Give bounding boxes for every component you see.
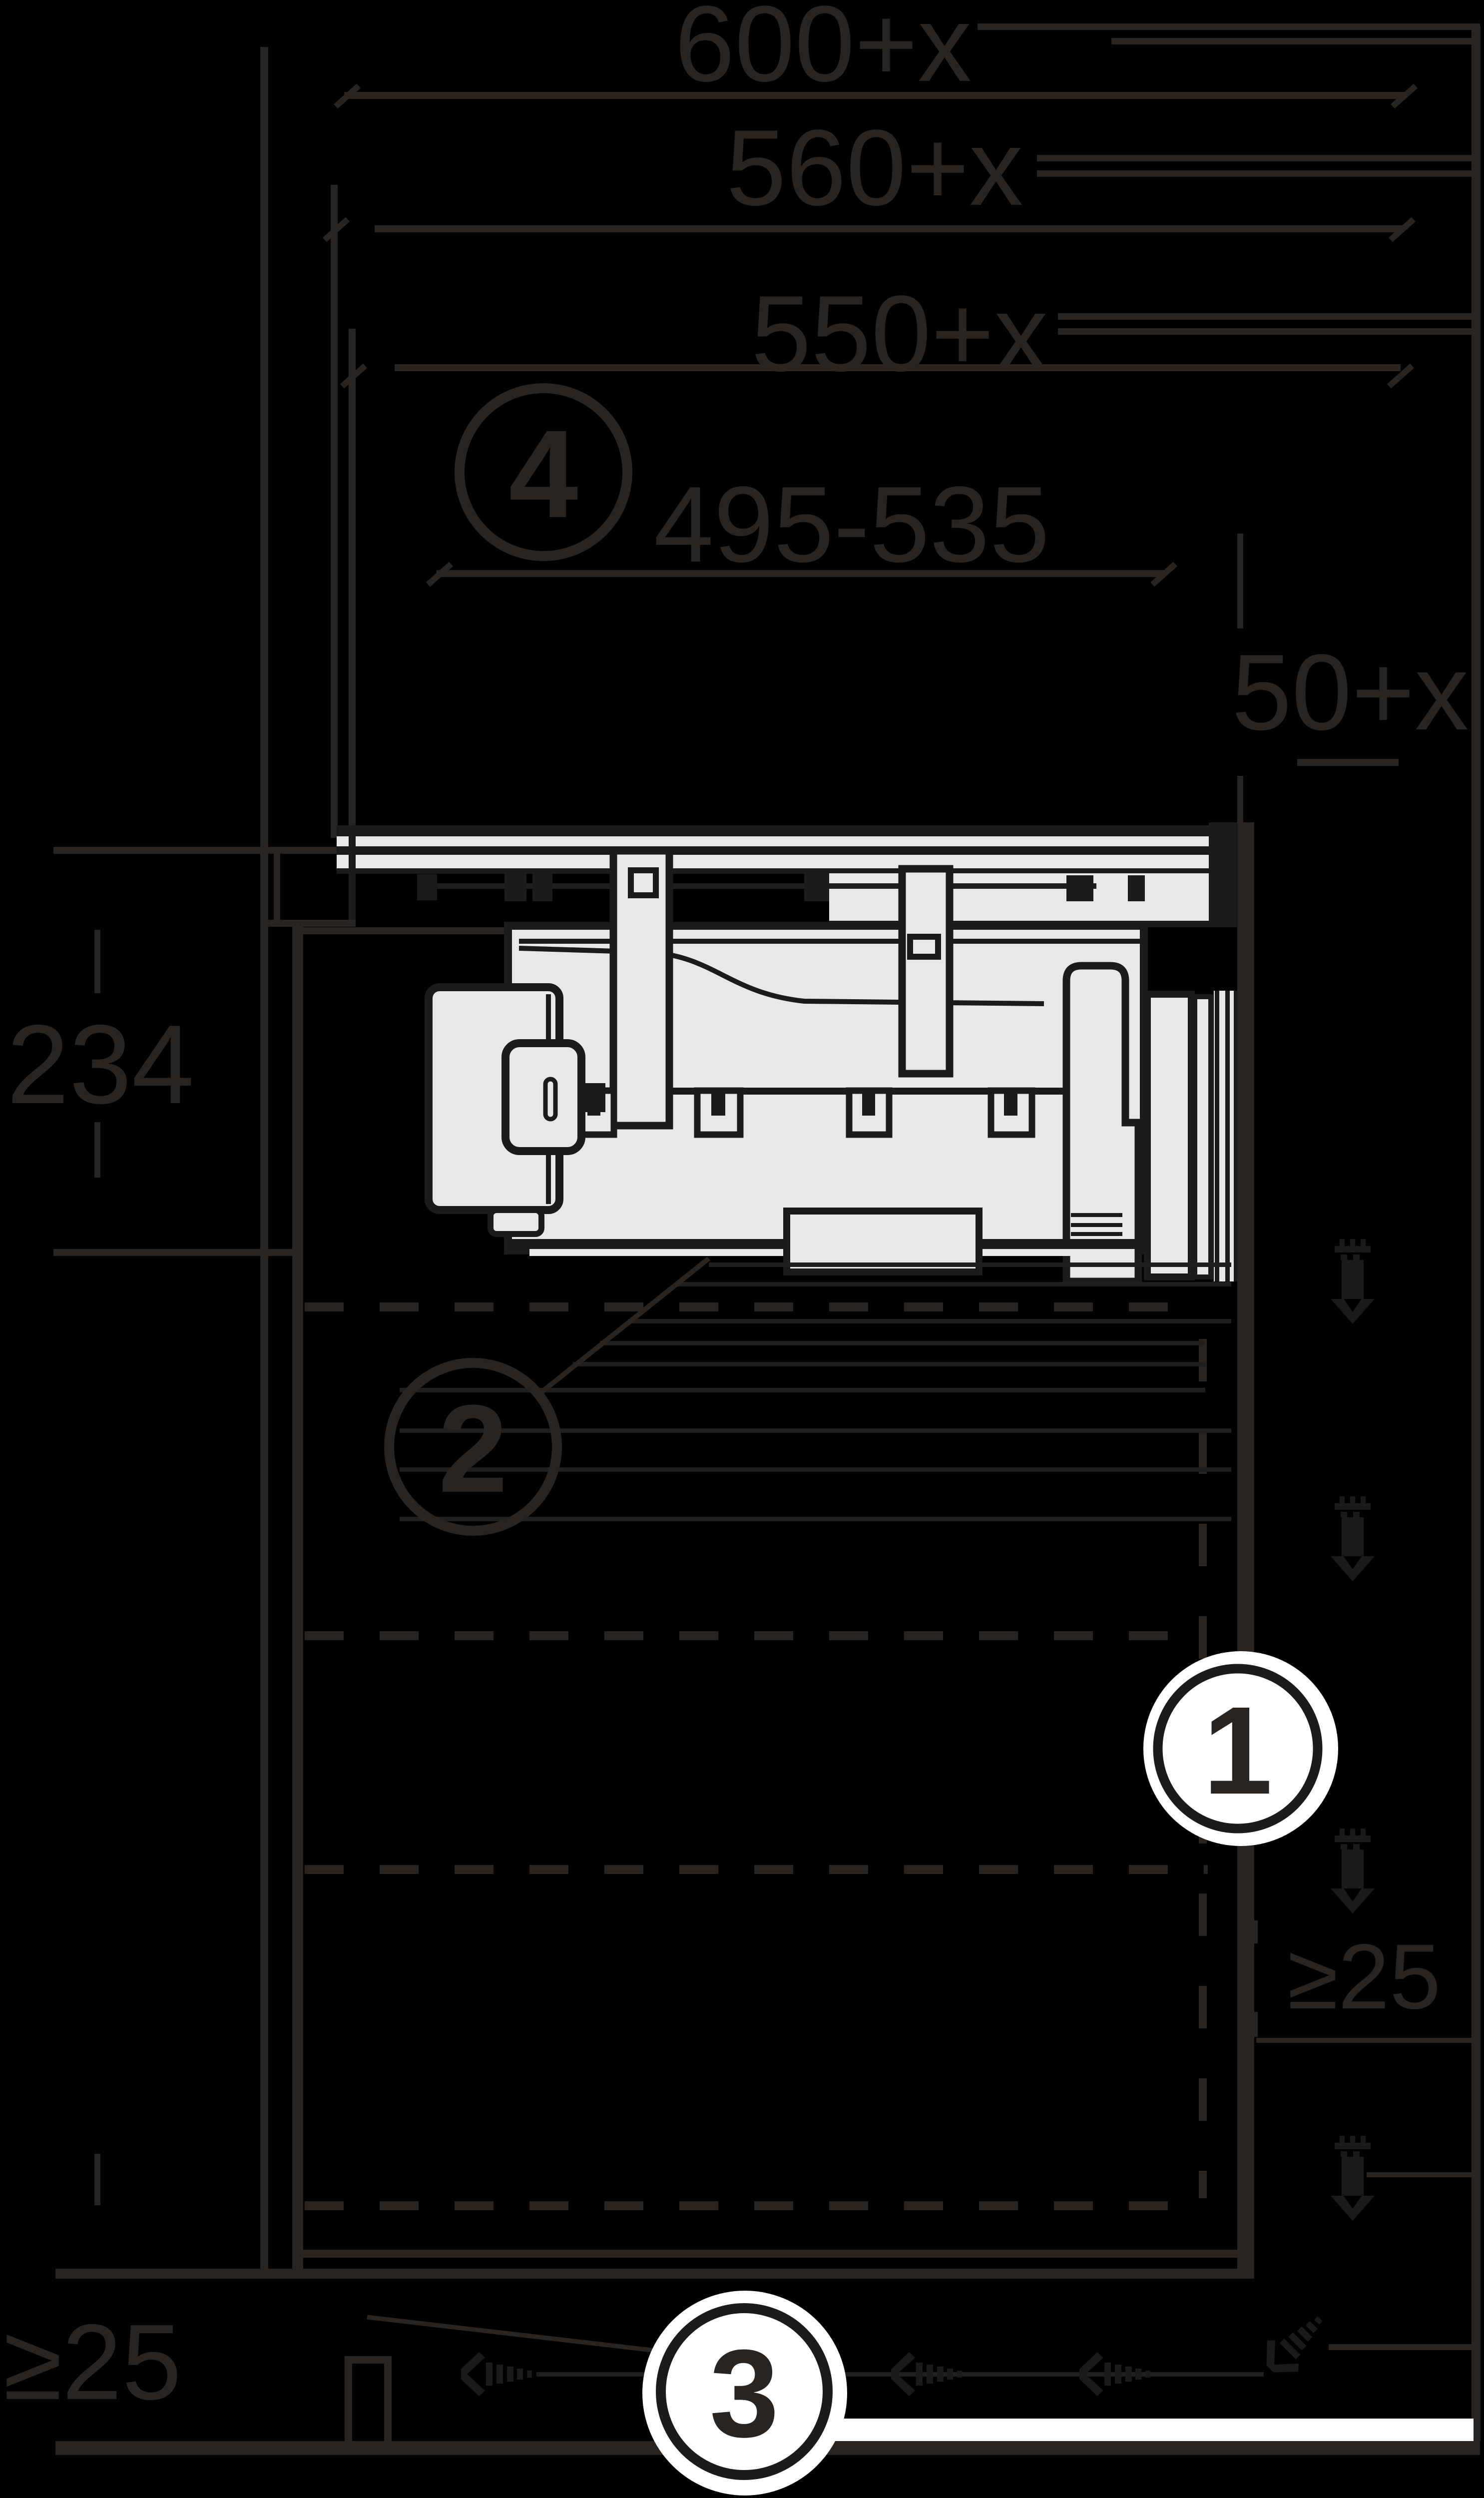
svg-text:550+x: 550+x [751, 273, 1048, 394]
svg-text:560+x: 560+x [726, 107, 1023, 228]
svg-text:495-535: 495-535 [654, 464, 1050, 585]
svg-text:50+x: 50+x [1232, 631, 1469, 752]
svg-text:234: 234 [6, 1001, 194, 1127]
svg-text:≥25: ≥25 [3, 2302, 181, 2422]
svg-text:1: 1 [1203, 1681, 1272, 1820]
svg-text:600+x: 600+x [675, 0, 972, 104]
svg-text:4: 4 [508, 404, 578, 544]
svg-text:≥25: ≥25 [1287, 1925, 1441, 2028]
svg-text:3: 3 [709, 2324, 779, 2463]
svg-text:2: 2 [438, 1379, 507, 1518]
